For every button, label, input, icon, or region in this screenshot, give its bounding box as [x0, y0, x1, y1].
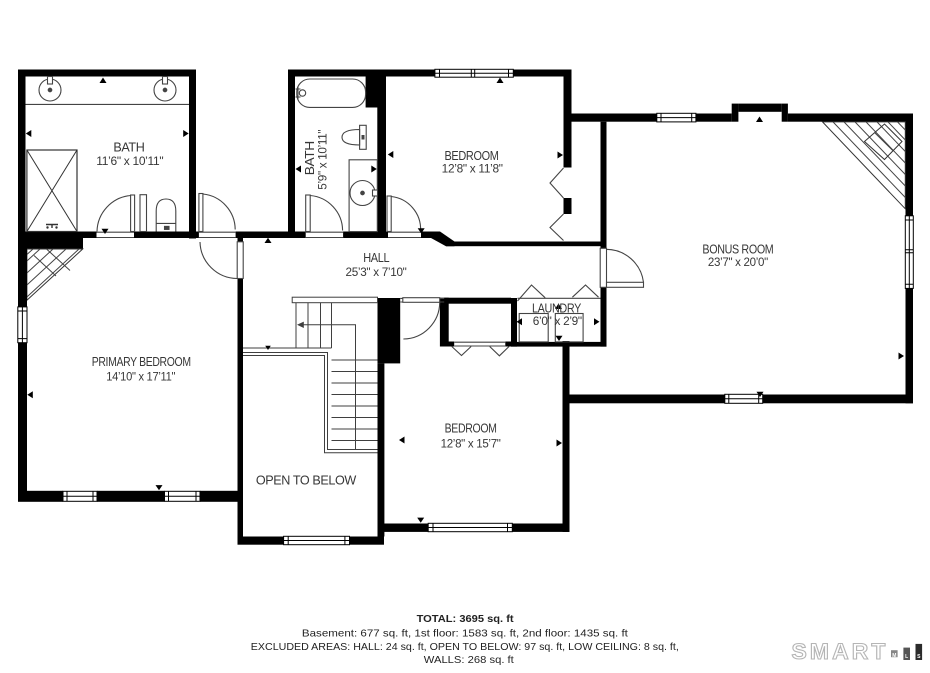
- svg-text:BATH: BATH: [113, 140, 144, 154]
- svg-text:12’8" x 11’8": 12’8" x 11’8": [442, 164, 503, 176]
- svg-text:PRIMARY BEDROOM: PRIMARY BEDROOM: [92, 355, 191, 369]
- svg-text:12’8" x 15’7": 12’8" x 15’7": [441, 439, 501, 451]
- svg-text:Basement: 677 sq. ft, 1st floo: Basement: 677 sq. ft, 1st floor: 1583 sq…: [302, 628, 628, 640]
- svg-text:OPEN TO BELOW: OPEN TO BELOW: [256, 473, 357, 487]
- svg-text:11’6" x 10’11": 11’6" x 10’11": [96, 156, 163, 168]
- svg-text:HALL: HALL: [363, 251, 389, 265]
- svg-text:BEDROOM: BEDROOM: [445, 149, 499, 163]
- svg-text:EXCLUDED AREAS: HALL: 24 sq. f: EXCLUDED AREAS: HALL: 24 sq. ft, OPEN TO…: [251, 641, 679, 653]
- svg-text:BATH: BATH: [303, 141, 317, 175]
- svg-text:LAUNDRY: LAUNDRY: [532, 301, 582, 315]
- svg-text:WALLS: 268 sq. ft: WALLS: 268 sq. ft: [424, 654, 514, 666]
- svg-text:23’7" x 20’0": 23’7" x 20’0": [708, 257, 768, 269]
- svg-text:14’10" x 17’11": 14’10" x 17’11": [106, 372, 175, 384]
- svg-text:SMART: SMART: [792, 639, 889, 664]
- svg-text:BONUS ROOM: BONUS ROOM: [702, 242, 773, 256]
- svg-text:25’3" x 7’10": 25’3" x 7’10": [346, 267, 407, 279]
- svg-text:5’9" x 10’11": 5’9" x 10’11": [318, 129, 330, 189]
- svg-text:L: L: [905, 654, 908, 660]
- svg-text:6’0" x 2’9": 6’0" x 2’9": [533, 316, 582, 328]
- svg-text:TOTAL: 3695 sq. ft: TOTAL: 3695 sq. ft: [417, 613, 515, 625]
- svg-text:BEDROOM: BEDROOM: [445, 421, 497, 435]
- svg-text:M: M: [892, 653, 896, 659]
